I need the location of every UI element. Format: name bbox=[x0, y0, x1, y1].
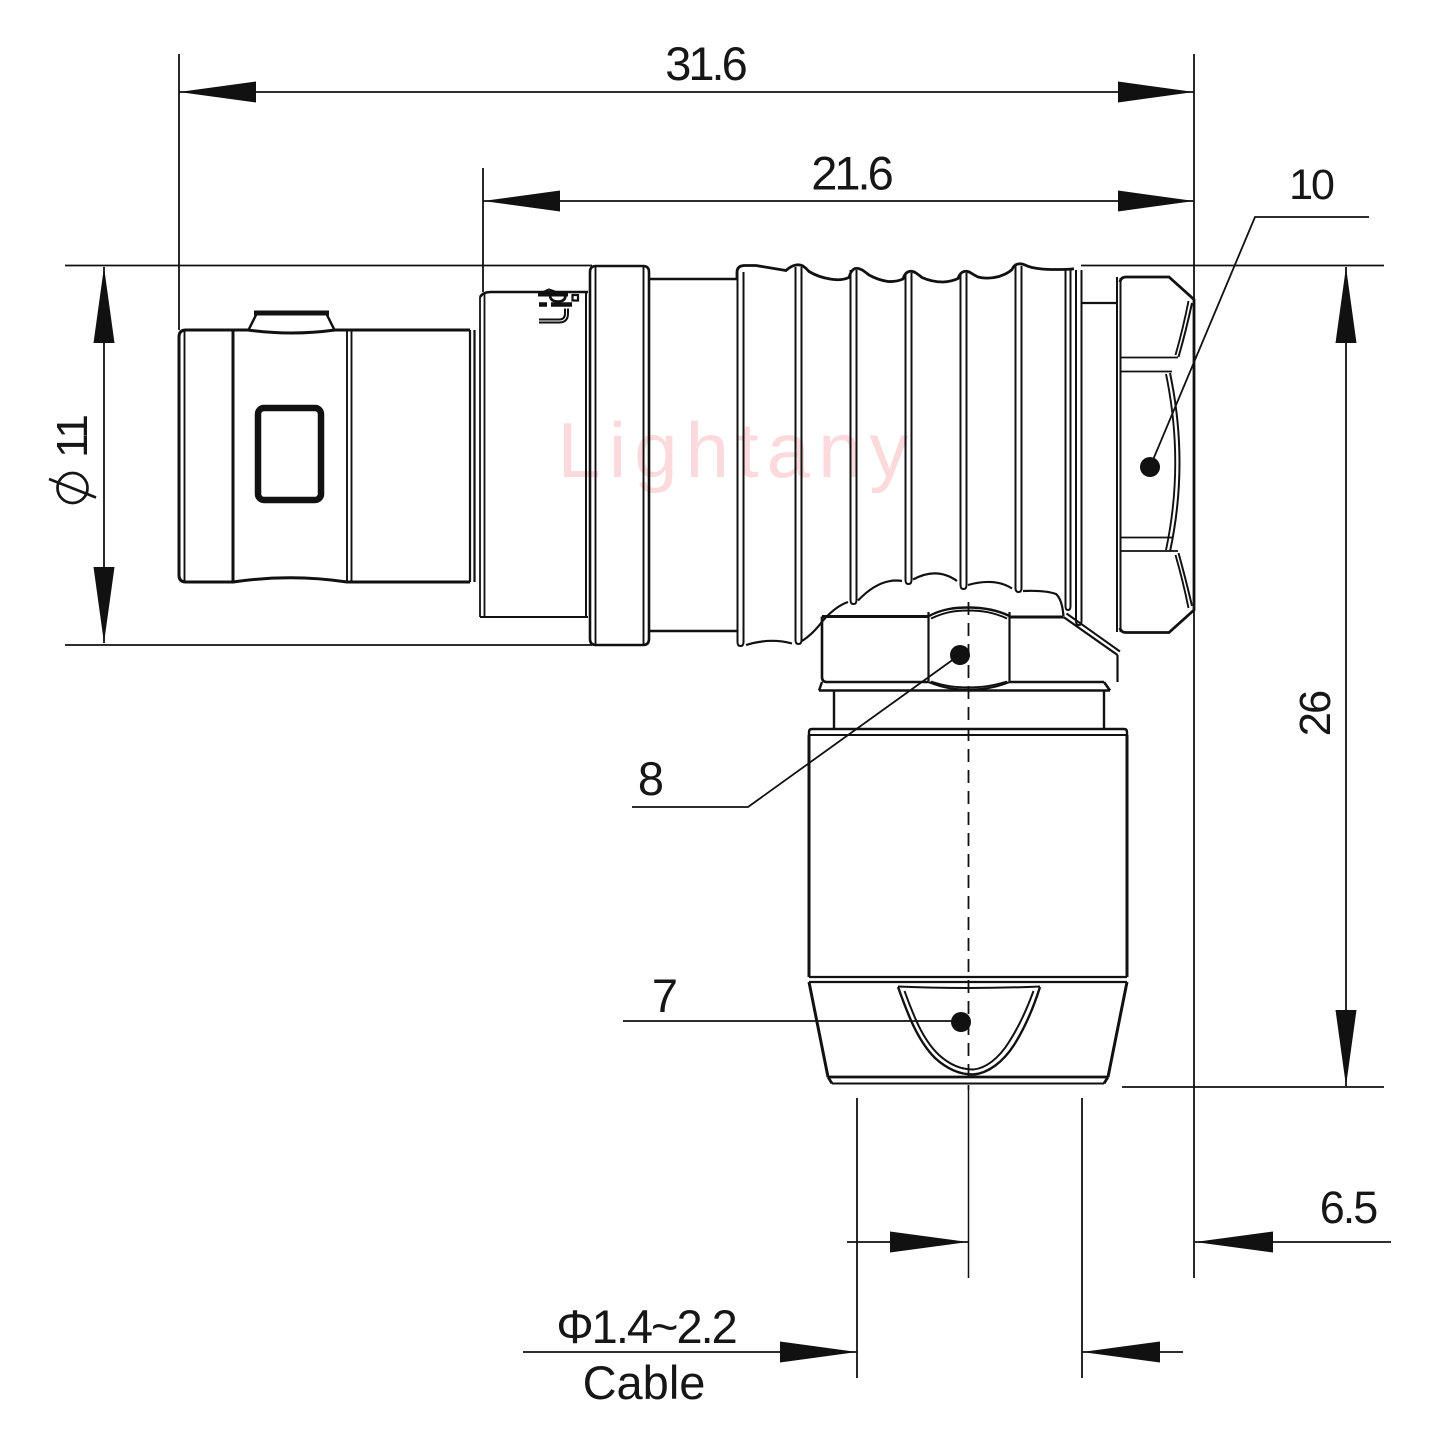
svg-text:26: 26 bbox=[1292, 691, 1340, 736]
svg-text:11: 11 bbox=[48, 416, 97, 458]
svg-text:Cable: Cable bbox=[583, 1356, 706, 1409]
svg-text:8: 8 bbox=[638, 752, 664, 805]
svg-text:21.6: 21.6 bbox=[811, 147, 892, 200]
svg-text:6.5: 6.5 bbox=[1320, 1182, 1378, 1233]
svg-text:Φ1.4~2.2: Φ1.4~2.2 bbox=[556, 1300, 736, 1353]
svg-text:7: 7 bbox=[652, 969, 678, 1022]
svg-text:31.6: 31.6 bbox=[665, 37, 746, 90]
svg-text:10: 10 bbox=[1289, 161, 1334, 209]
